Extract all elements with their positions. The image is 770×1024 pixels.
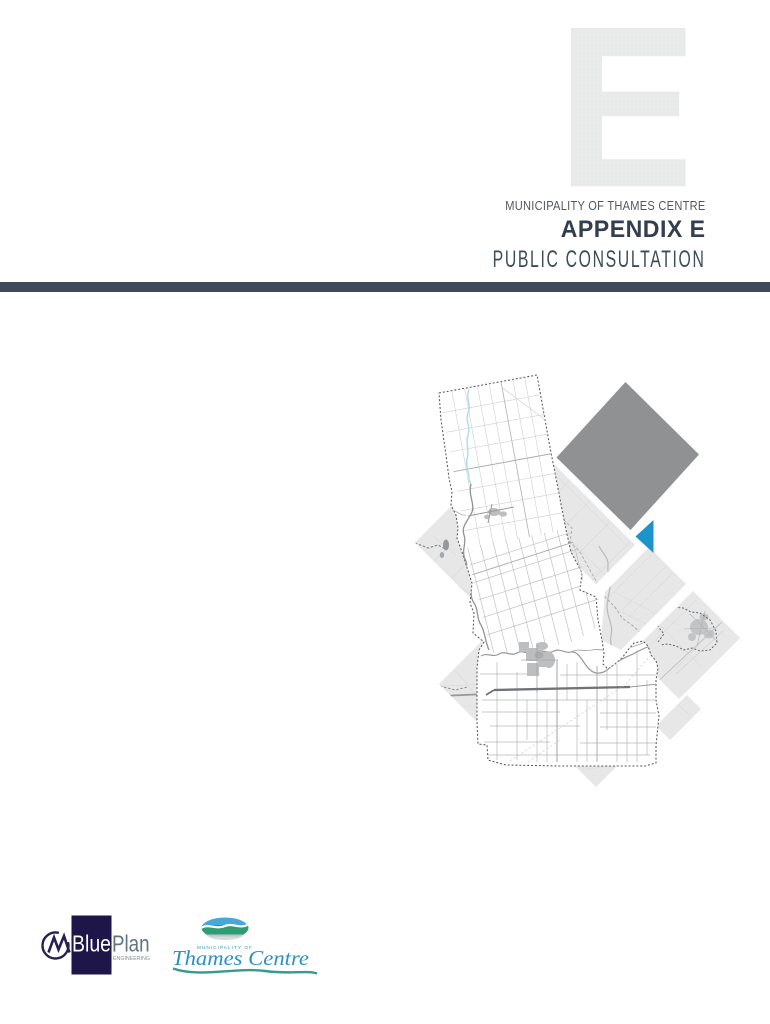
svg-text:Thames Centre: Thames Centre (172, 946, 309, 970)
svg-text:Plan: Plan (112, 931, 150, 957)
svg-text:ENGINEERING: ENGINEERING (113, 956, 150, 962)
svg-text:Blue: Blue (72, 931, 111, 957)
